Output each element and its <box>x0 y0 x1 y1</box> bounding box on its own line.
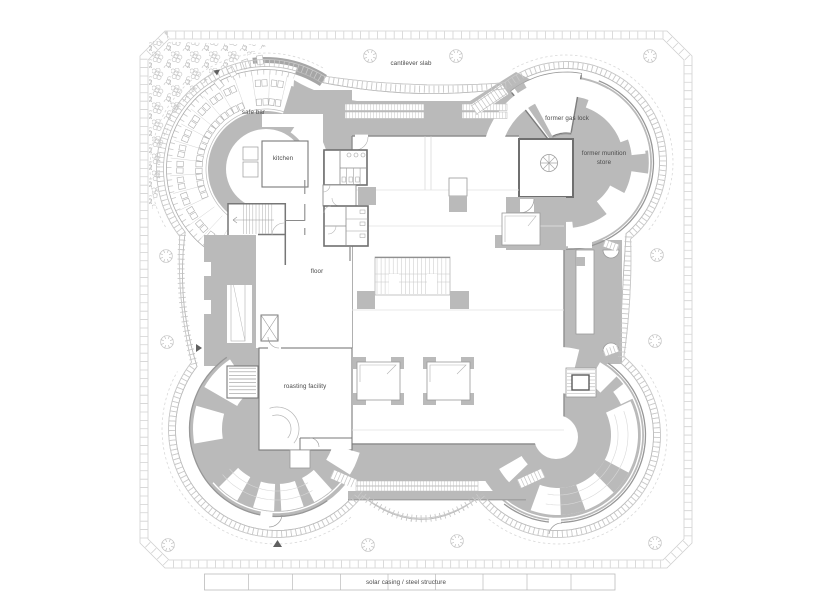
svg-text:solar casing / steel structure: solar casing / steel structure <box>366 579 446 586</box>
svg-text:former munition: former munition <box>582 150 627 157</box>
svg-text:safe bar: safe bar <box>242 109 265 116</box>
svg-text:kitchen: kitchen <box>273 155 294 162</box>
svg-text:former gas lock: former gas lock <box>545 115 590 122</box>
svg-text:cantilever slab: cantilever slab <box>390 60 432 67</box>
svg-text:store: store <box>597 159 612 166</box>
svg-text:roasting facility: roasting facility <box>284 383 327 390</box>
svg-text:floor: floor <box>311 268 324 275</box>
